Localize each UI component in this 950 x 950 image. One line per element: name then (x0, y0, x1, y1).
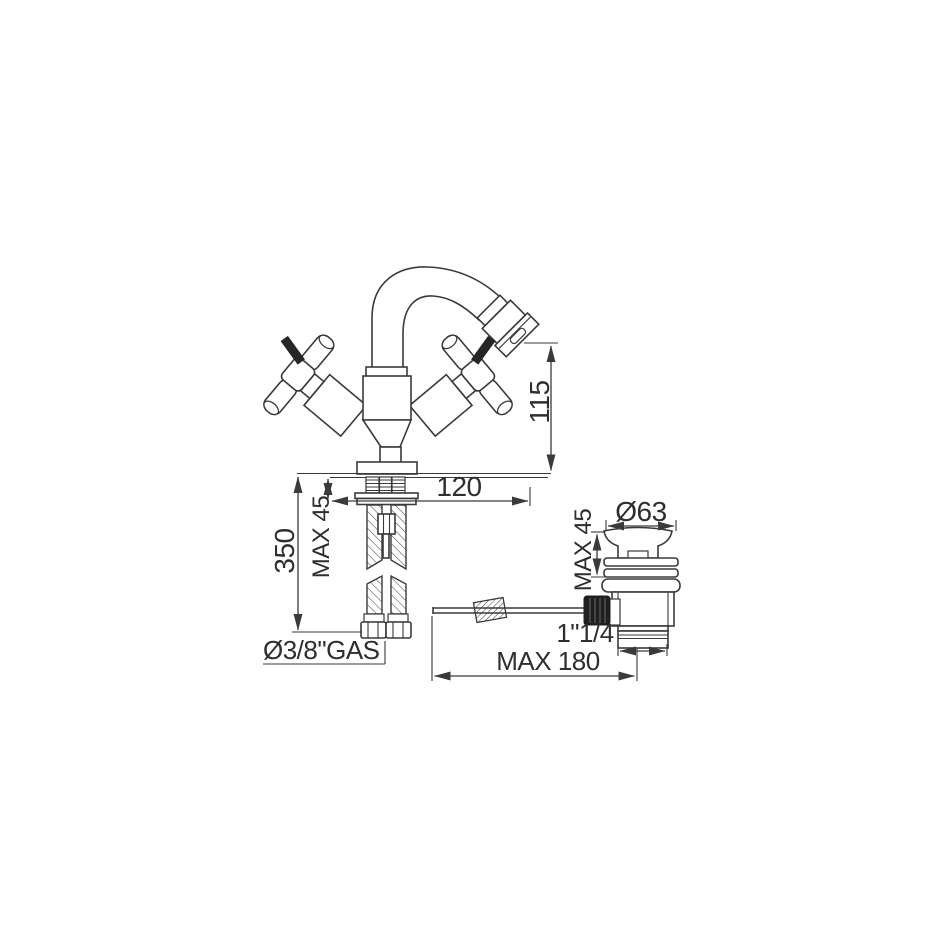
handle-front-arm (281, 337, 304, 364)
dim-spout-projection: 120 (332, 471, 530, 506)
faucet-figure (241, 267, 551, 638)
bidet-mixer-drawing: 115 120 350 MAX 45 Ø3/8"GAS (0, 0, 950, 950)
supply-hose-left-end (367, 576, 382, 614)
dim-max45-right-label: MAX 45 (570, 509, 597, 592)
dim-max-deck-faucet: MAX 45 (308, 479, 335, 578)
dim-o63-label: Ø63 (615, 496, 666, 527)
dim-max-deck-waste: MAX 45 (570, 509, 608, 592)
waste-washer-upper (604, 558, 678, 566)
waste-body (612, 592, 674, 626)
waste-seat-flange (602, 579, 680, 592)
hose-thread-label: Ø3/8"GAS (263, 635, 380, 665)
waste-outlet (618, 631, 668, 648)
waste-washer-lower (604, 569, 678, 577)
mounting-stud (383, 534, 389, 558)
dim-120-label: 120 (436, 471, 481, 502)
threaded-shanks (366, 477, 405, 493)
hose-nut-right (386, 614, 411, 638)
faucet-body-taper (363, 420, 411, 447)
dim-spout-height: 115 (524, 343, 558, 471)
handle-front-arm (472, 337, 495, 364)
dim-waste-cap-diameter: Ø63 (606, 496, 676, 531)
faucet-body (363, 376, 411, 420)
mounting-nut (378, 514, 395, 534)
faucet-base (357, 462, 417, 474)
dim-115-label: 115 (524, 380, 555, 423)
dim-max180-label: MAX 180 (496, 646, 599, 676)
washer-plate (355, 493, 418, 499)
dim-hose-thread: Ø3/8"GAS (263, 635, 385, 665)
dim-1-1-4-label: 1"1/4 (556, 618, 613, 648)
dim-350-label: 350 (269, 528, 300, 573)
rod-joint-knurl (473, 598, 506, 623)
dim-max45-left-label: MAX 45 (308, 496, 335, 579)
faucet-stem (380, 447, 401, 463)
supply-hose-right-end (391, 576, 406, 614)
technical-drawing-page: 115 120 350 MAX 45 Ø3/8"GAS (0, 0, 950, 950)
